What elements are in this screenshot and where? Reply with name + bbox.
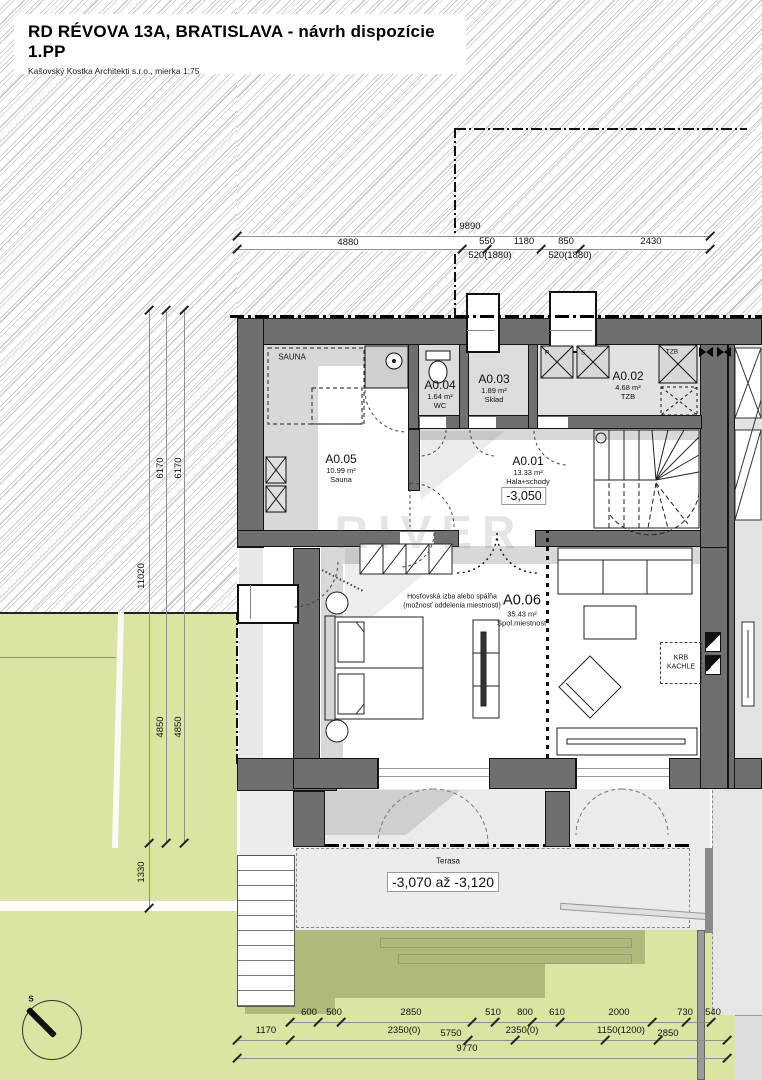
dim-label: 5750 [440,1029,461,1039]
room-label-a003: A0.03 1.89 m² Sklad [478,372,509,404]
dim-line [149,310,150,908]
partition-dotted [546,530,549,758]
lightwell-sill-line [550,330,592,331]
dim-label: 850 [558,237,574,247]
dim-label: 2850 [400,1008,421,1018]
terrace-door-bedroom [378,758,490,789]
upper-floor-outline-h [455,128,747,130]
room-label-a004: A0.04 1.64 m² WC [424,378,455,410]
dim-label: 4850 [174,716,184,737]
corner-steps [735,1015,762,1080]
lightwell-window [549,291,597,353]
dim-line [237,1040,727,1041]
dim-label: 800 [517,1008,533,1018]
dim-line [237,1058,727,1059]
dim-label: 4850 [156,716,166,737]
chimney-flue [705,632,721,652]
dim-label: 4880 [337,238,358,248]
wall-pier-terrace [545,791,570,847]
west-lightwell-line [250,585,251,619]
wall-south-a [293,758,378,789]
wall-west-upper [237,318,264,548]
dim-label: 1180 [514,237,534,247]
boundary-dashdot-sw [236,612,238,764]
watermark: RIVER [335,505,526,559]
terrace-label: Terasa [436,857,460,866]
door-gap [420,417,446,428]
room-label-a001: A0.01 13.33 m² Hala+schody [506,454,550,486]
floor-plan-sheet: RD RÉVOVA 13A, BRATISLAVA - návrh dispoz… [0,0,762,1080]
wall-shadow [321,546,343,758]
dim-label: 6170 [174,457,184,478]
title-block: RD RÉVOVA 13A, BRATISLAVA - návrh dispoz… [14,14,466,74]
door-gap [468,417,496,428]
wall-south-b [488,758,576,789]
lightwell-window [466,293,500,353]
fireplace-label: KRB KACHLE [667,654,695,673]
guest-room-note: Hosťovská izba alebo spálňa (možnosť odd… [403,593,501,612]
shaft-tzb-label: TZB [666,349,678,356]
dim-label: 520(1880) [468,251,511,261]
neighbor-strip-floor [735,548,762,789]
exterior-stairs [237,855,295,1007]
level-hala: -3,050 [501,487,546,505]
chimney-flue [705,655,721,675]
dim-label: 11020 [137,563,147,589]
right-terrace [712,760,762,1015]
wall-pier-terrace [293,791,325,847]
dim-label: 6170 [156,457,166,478]
wall-shadow [263,344,318,530]
terrace-door-living [576,758,670,789]
dim-label: 2350(0) [388,1026,421,1036]
dim-label: 2350(0) [506,1026,539,1036]
dim-label: 540 [705,1008,721,1018]
west-lightwell-window [237,584,299,624]
garden-gap-strip [0,901,242,911]
dim-label: 1170 [256,1026,276,1036]
shaft-s-label: S [581,350,585,357]
dim-label: 520(1880) [548,251,591,261]
wall-divider-living [535,530,702,547]
lightwell-sill-line [467,330,495,331]
garden-step [380,938,632,948]
page-subtitle: Kašovský Kostka Architekti s.r.o., mierk… [28,66,452,76]
room-label-a002: A0.02 4.68 m² TZB [612,369,643,401]
wall-wc-sklad [459,344,469,429]
dim-label: 500 [326,1008,342,1018]
garden-step [398,954,632,964]
wall-neighbor-divider [728,344,735,789]
room-label-a005: A0.05 10.99 m² Sauna [325,452,356,484]
terrain-hatch-left [0,0,237,612]
page-title: RD RÉVOVA 13A, BRATISLAVA - návrh dispoz… [28,22,452,62]
dim-line [237,236,710,237]
terrace-level: -3,070 až -3,120 [387,872,499,892]
dim-label: 730 [677,1008,693,1018]
compass-north-label: S [28,995,33,1004]
dim-label: 1150(1200) [597,1026,645,1036]
sauna-zone-label: SAUNA [278,353,306,362]
dim-label: 1330 [137,861,147,882]
section-line-top [230,315,762,318]
wall-sauna-wc [408,344,419,429]
room-label-a006: A0.06 35.43 m² Spol.miestnosť [497,592,547,627]
dim-label: 2000 [608,1008,629,1018]
retaining-wall [705,848,713,933]
dim-line [184,310,185,843]
wall-shadow [408,428,700,440]
upper-floor-outline-v [454,128,456,318]
dim-label: 9890 [459,222,480,232]
neighbor-strip-floor [735,344,762,548]
wall-sklad-tzb [528,344,538,429]
dim-label: 550 [479,237,495,247]
dim-label: 600 [301,1008,317,1018]
wall-east-upper [700,344,728,548]
wall-sauna-east [408,429,420,491]
dim-line [290,1022,711,1023]
dim-label: 9770 [456,1044,477,1054]
dim-line [166,310,167,843]
terrace-edge-dashdot [300,844,690,847]
dim-label: 2430 [640,237,661,247]
garden-divider-line [0,657,116,658]
shaft-p-label: P [545,350,549,357]
